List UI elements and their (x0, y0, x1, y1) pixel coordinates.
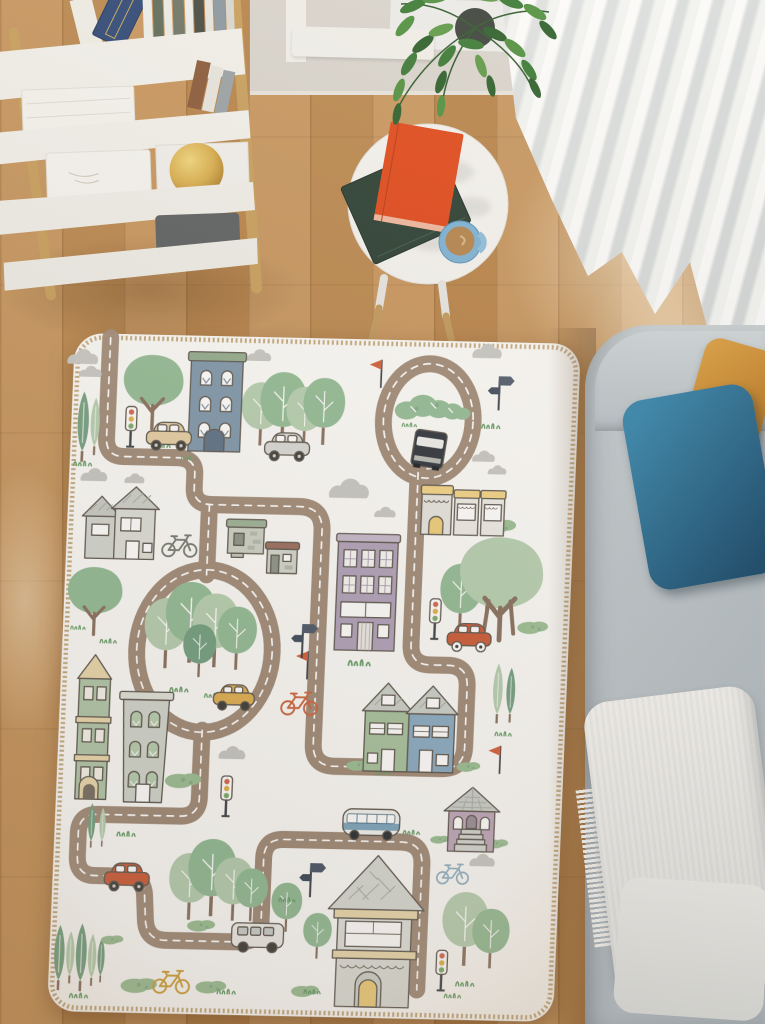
rug-light-shading (47, 333, 581, 1022)
table-leg (442, 284, 446, 316)
bookshelf (0, 0, 294, 325)
houseplant (383, 0, 563, 146)
table-leg (379, 278, 384, 308)
side-table (338, 112, 528, 362)
room-photo (0, 0, 765, 1024)
blanket-fold (612, 876, 765, 1022)
play-rug (7, 324, 594, 1024)
sofa (585, 325, 765, 1024)
teal-pillow (619, 381, 765, 593)
